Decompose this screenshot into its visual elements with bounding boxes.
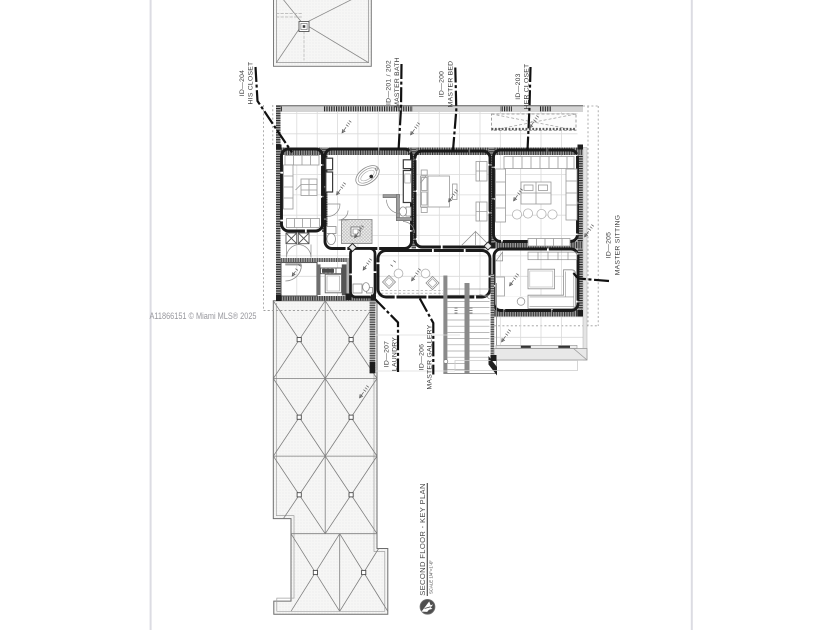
- svg-text:ID—206: ID—206: [418, 344, 425, 370]
- svg-text:LAUNDRY: LAUNDRY: [391, 337, 398, 371]
- svg-text:ID—207: ID—207: [383, 341, 390, 367]
- svg-text:MASTER GALLERY: MASTER GALLERY: [426, 324, 433, 389]
- svg-text:MASTER BATH: MASTER BATH: [394, 57, 401, 108]
- svg-text:ID—205: ID—205: [605, 232, 612, 258]
- svg-text:SCALE 1/4"=1'-0": SCALE 1/4"=1'-0": [429, 560, 434, 594]
- svg-text:HER CLOSET: HER CLOSET: [523, 64, 530, 110]
- svg-text:SECOND FLOOR - KEY PLAN: SECOND FLOOR - KEY PLAN: [418, 483, 427, 596]
- svg-text:MASTER SITTING: MASTER SITTING: [614, 215, 621, 276]
- svg-text:ID—201 / 202: ID—201 / 202: [385, 60, 392, 105]
- svg-text:ID—203: ID—203: [515, 73, 522, 99]
- svg-text:ID—204: ID—204: [239, 70, 246, 96]
- svg-text:HIS CLOSET: HIS CLOSET: [247, 62, 254, 105]
- svg-text:ID—200: ID—200: [438, 71, 445, 97]
- svg-text:MASTER BED: MASTER BED: [447, 61, 454, 108]
- svg-text:A11866151 © Miami MLS® 2025: A11866151 © Miami MLS® 2025: [150, 311, 257, 321]
